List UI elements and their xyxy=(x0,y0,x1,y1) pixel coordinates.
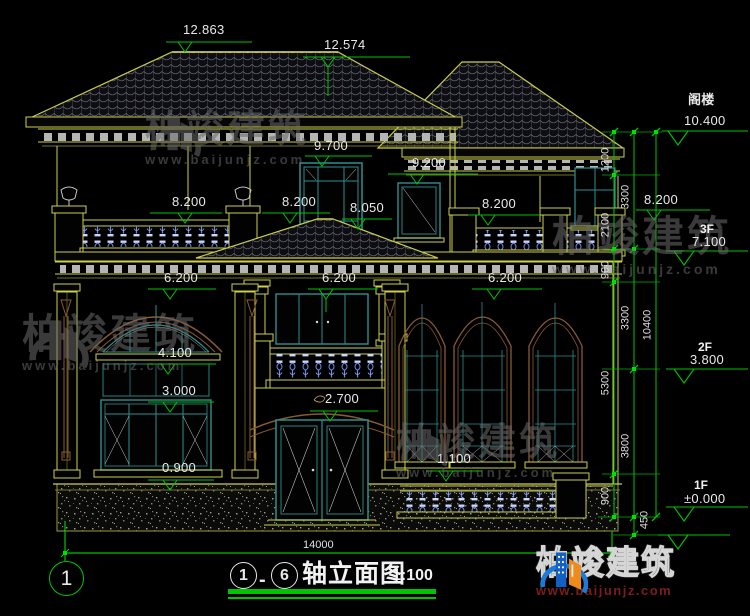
level-value-2f: 3.800 xyxy=(690,353,724,366)
chain-dim-3300a: 3300 xyxy=(621,185,632,209)
axis-bubble-1: 1 xyxy=(49,561,84,596)
third-floor-window-left xyxy=(394,183,444,242)
level-value-attic: 10.400 xyxy=(684,114,726,127)
level-name-1f: 1F xyxy=(694,479,708,491)
watermark-logo-icon xyxy=(22,314,92,380)
elevation-label-8200-d: 8.200 xyxy=(644,193,678,206)
chain-dim-1200: 1200 xyxy=(601,148,612,172)
level-name-attic: 阁楼 xyxy=(688,93,715,106)
drawing-scale: 1:100 xyxy=(392,568,433,584)
level-value-1f: ±0.000 xyxy=(684,492,725,505)
elevation-drawing xyxy=(0,0,750,616)
elevation-label-6200-a: 6.200 xyxy=(164,271,198,284)
chain-dim-900b: 900 xyxy=(601,487,612,505)
elevation-label-8200-c: 8.200 xyxy=(482,197,516,210)
chain-dim-3800: 3800 xyxy=(621,434,632,458)
watermark-logo-icon xyxy=(396,424,450,476)
watermark-center: 柏竣建筑 www.baijunjz.com xyxy=(396,424,560,480)
elevation-label-12863: 12.863 xyxy=(183,23,225,36)
company-logo-icon xyxy=(536,546,588,604)
elevation-label-1100: 1.100 xyxy=(437,452,471,465)
elevation-label-12574: 12.574 xyxy=(324,38,366,51)
elevation-label-9200: 9.200 xyxy=(412,156,446,169)
elevation-label-3000: 3.000 xyxy=(162,384,196,397)
title-axis-start-circle: 1 xyxy=(230,562,257,589)
elevation-label-8200-b: 8.200 xyxy=(282,195,316,208)
elevation-label-6200-b: 6.200 xyxy=(322,271,356,284)
left-bay-lower-window xyxy=(94,400,222,477)
chain-dim-900a: 900 xyxy=(601,261,612,279)
chain-dim-450: 450 xyxy=(640,511,651,529)
elevation-label-8050: 8.050 xyxy=(350,201,384,214)
chain-dim-10400: 10400 xyxy=(643,310,654,341)
chain-dim-5300: 5300 xyxy=(601,371,612,395)
title-underline-thin xyxy=(228,597,436,599)
watermark-top: 柏竣建筑 www.baijunjz.com xyxy=(145,111,309,167)
title-underline-thick xyxy=(228,589,436,594)
third-floor-balcony-left xyxy=(52,187,260,254)
second-floor-window xyxy=(276,294,368,344)
level-value-3f: 7.100 xyxy=(692,235,726,248)
elevation-label-6200-c: 6.200 xyxy=(488,271,522,284)
elevation-label-4100: 4.100 xyxy=(158,346,192,359)
watermark-left: 柏竣建筑 www.baijunjz.com xyxy=(22,314,198,373)
chain-dim-2100: 2100 xyxy=(601,213,612,237)
elevation-label-2700: 2.700 xyxy=(325,392,359,405)
title-axis-end-circle: 6 xyxy=(271,562,298,589)
drawing-title: 轴立面图 xyxy=(302,562,406,587)
watermark-logo-icon xyxy=(145,111,203,167)
cad-elevation-screenshot: 柏竣建筑 www.baijunjz.com 柏竣建筑 www.baijunjz.… xyxy=(0,0,750,616)
title-separator: - xyxy=(259,570,266,590)
elevation-label-9700: 9.700 xyxy=(314,139,348,152)
elevation-label-8200-a: 8.200 xyxy=(172,195,206,208)
watermark-url: www.baijunjz.com xyxy=(552,261,732,277)
chain-dim-3300b: 3300 xyxy=(621,306,632,330)
elevation-label-0900: 0.900 xyxy=(162,461,196,474)
company-logo: 柏竣建筑 www.baijunjz.com xyxy=(536,546,676,598)
total-width-dimension: 14000 xyxy=(303,540,334,551)
